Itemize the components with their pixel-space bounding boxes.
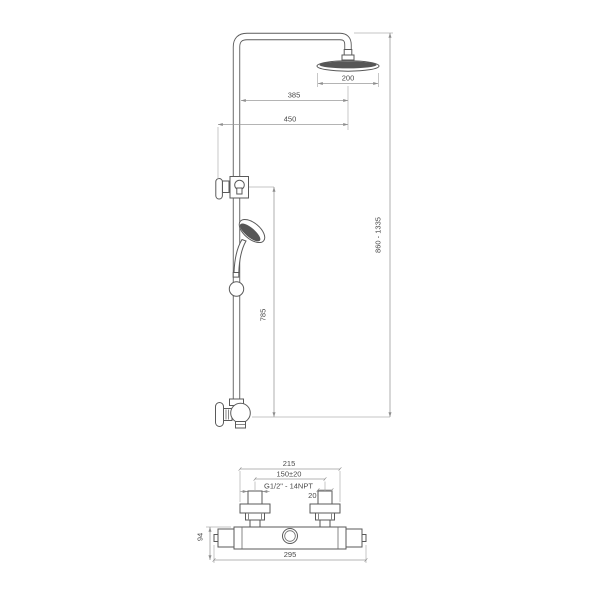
dim-body-height-label: 94 bbox=[196, 533, 205, 541]
shower-head-face bbox=[319, 61, 376, 68]
mixer-inlets bbox=[240, 491, 340, 527]
bottom-swivel-ball bbox=[231, 403, 251, 423]
mixer-handle-notch-left bbox=[214, 535, 218, 542]
dim-head-diameter-label: 200 bbox=[342, 74, 355, 83]
dimension-thread-spec: G1/2" - 14NPT bbox=[241, 482, 314, 492]
dim-arm-projection-label: 385 bbox=[288, 91, 301, 100]
bracket-wall-knob bbox=[216, 179, 223, 200]
mixer-handle-right bbox=[346, 529, 362, 547]
dimension-arm-projection: 385 bbox=[241, 91, 348, 101]
dim-inlet-spacing-label: 150±20 bbox=[277, 470, 302, 479]
shower-system-drawing: 200 385 450 860 - 1335 785 bbox=[0, 0, 600, 600]
hand-shower-end-cap bbox=[233, 273, 239, 278]
mixer-handle-left bbox=[218, 529, 234, 547]
mixer-body bbox=[214, 527, 366, 549]
shower-head-collar bbox=[342, 55, 354, 60]
dimension-height-range: 860 - 1335 bbox=[354, 33, 393, 417]
mixer-escutcheon-left bbox=[240, 504, 270, 513]
overhead-shower-head bbox=[317, 50, 379, 72]
mixer-stem-left bbox=[250, 520, 260, 527]
dim-height-range-label: 860 - 1335 bbox=[374, 217, 383, 253]
dim-overall-width-label: 295 bbox=[284, 550, 297, 559]
technical-drawing-canvas: 200 385 450 860 - 1335 785 bbox=[0, 0, 600, 600]
mixer-inlet-pipe-left bbox=[248, 491, 262, 504]
dim-thread-spec-label: G1/2" - 14NPT bbox=[264, 482, 313, 491]
bracket-collar bbox=[223, 181, 230, 193]
bottom-bracket bbox=[216, 399, 251, 428]
bottom-wall-flange bbox=[216, 403, 224, 427]
mixer-stem-right bbox=[320, 520, 330, 527]
dim-escutcheon-span-label: 215 bbox=[283, 459, 296, 468]
dim-total-projection-label: 450 bbox=[284, 115, 297, 124]
dim-rail-height-label: 785 bbox=[259, 309, 268, 322]
mixer-escutcheon-right bbox=[310, 504, 340, 513]
rail-slider-ball bbox=[229, 282, 243, 296]
dimension-head-diameter: 200 bbox=[318, 73, 379, 87]
wall-bracket-diverter bbox=[216, 177, 249, 200]
bracket-keyhole bbox=[237, 188, 242, 194]
dim-inlet-size-label: 20 bbox=[308, 491, 316, 500]
mixer-inlet-pipe-right bbox=[318, 491, 332, 504]
mixer-handle-notch-right bbox=[362, 535, 366, 542]
